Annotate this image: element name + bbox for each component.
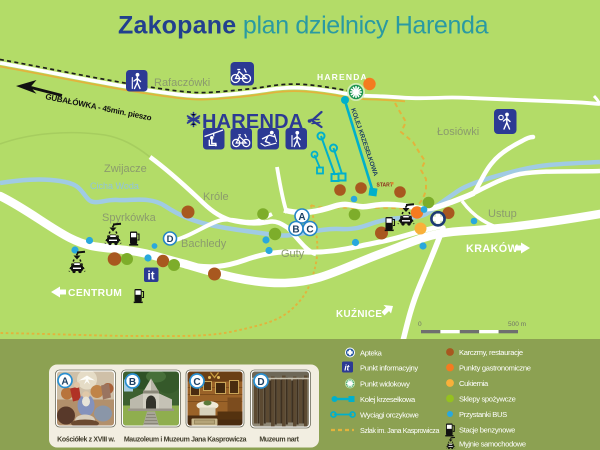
svg-text:Łosiówki: Łosiówki — [437, 126, 479, 138]
svg-text:Sklepy spożywcze: Sklepy spożywcze — [459, 395, 516, 404]
svg-text:Kościółek z XVIII w.: Kościółek z XVIII w. — [57, 437, 115, 444]
svg-text:D: D — [257, 377, 264, 388]
svg-text:B: B — [129, 377, 136, 388]
svg-text:Spyrkówka: Spyrkówka — [102, 212, 157, 224]
svg-text:Ustup: Ustup — [488, 208, 517, 220]
svg-text:Punkt informacyjny: Punkt informacyjny — [360, 364, 418, 373]
svg-text:Punkty gastronomiczne: Punkty gastronomiczne — [459, 364, 531, 373]
svg-text:A: A — [61, 376, 68, 387]
svg-text:D: D — [167, 234, 174, 245]
svg-text:Stacje benzynowe: Stacje benzynowe — [459, 426, 515, 435]
svg-text:Kolej krzesełkowa: Kolej krzesełkowa — [360, 395, 416, 404]
svg-text:Rafaczówki: Rafaczówki — [154, 77, 210, 89]
svg-text:HARENDA: HARENDA — [317, 72, 368, 82]
svg-text:Muzeum nart: Muzeum nart — [259, 437, 299, 444]
svg-text:KUŹNICE: KUŹNICE — [336, 308, 382, 320]
svg-text:Myjnie samochodowe: Myjnie samochodowe — [459, 440, 526, 449]
svg-text:Szlak im. Jana Kasprowicza: Szlak im. Jana Kasprowicza — [360, 426, 439, 435]
svg-text:Wyciągi orczykowe: Wyciągi orczykowe — [360, 411, 419, 420]
svg-text:Punkt widokowy: Punkt widokowy — [360, 380, 410, 389]
svg-text:Karczmy, restauracje: Karczmy, restauracje — [459, 348, 523, 357]
svg-text:Przystanki BUS: Przystanki BUS — [459, 410, 507, 419]
svg-text:Zakopane plan dzielnicy Harend: Zakopane plan dzielnicy Harenda — [118, 12, 489, 40]
svg-text:Bachledy: Bachledy — [181, 238, 227, 250]
svg-text:Zwijacze: Zwijacze — [104, 163, 147, 175]
svg-text:Guty: Guty — [281, 248, 305, 260]
svg-text:C: C — [306, 224, 313, 235]
svg-text:C: C — [193, 377, 200, 388]
svg-text:Cukiernia: Cukiernia — [459, 379, 489, 388]
svg-text:A: A — [298, 212, 305, 223]
svg-text:Mauzoleum i Muzeum Jana Kaspro: Mauzoleum i Muzeum Jana Kasprowicza — [124, 437, 247, 444]
svg-text:START: START — [377, 183, 393, 189]
svg-text:0: 0 — [418, 321, 422, 328]
svg-text:B: B — [292, 224, 299, 235]
svg-text:Cicha Woda: Cicha Woda — [90, 181, 139, 191]
svg-text:Apteka: Apteka — [360, 349, 383, 358]
svg-text:Króle: Króle — [203, 191, 229, 203]
svg-text:CENTRUM: CENTRUM — [68, 288, 122, 299]
svg-text:it: it — [148, 271, 155, 283]
svg-text:500 m: 500 m — [508, 321, 526, 328]
svg-text:KRAKÓW: KRAKÓW — [466, 242, 519, 255]
